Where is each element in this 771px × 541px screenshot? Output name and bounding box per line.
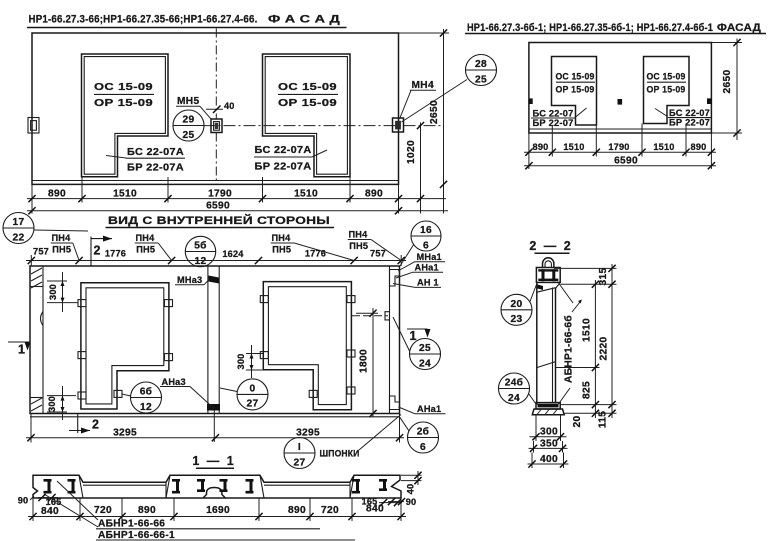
svg-text:5б: 5б	[194, 240, 207, 252]
svg-text:40: 40	[406, 484, 416, 495]
svg-text:1: 1	[410, 329, 417, 343]
svg-text:Ф А С А Д: Ф А С А Д	[268, 14, 340, 26]
svg-text:20: 20	[572, 416, 583, 428]
svg-text:25: 25	[475, 74, 487, 85]
svg-text:ПН5: ПН5	[349, 241, 368, 251]
svg-text:АН 1: АН 1	[417, 278, 439, 288]
svg-text:АБНР1-66-66: АБНР1-66-66	[98, 519, 165, 530]
svg-text:27: 27	[294, 457, 306, 468]
svg-text:МНа3: МНа3	[177, 275, 202, 285]
svg-text:825: 825	[582, 381, 593, 399]
svg-text:1790: 1790	[608, 142, 629, 152]
svg-text:1510: 1510	[294, 189, 318, 200]
svg-text:12: 12	[195, 256, 207, 267]
svg-text:1776: 1776	[105, 249, 126, 259]
svg-text:МН5: МН5	[177, 96, 199, 107]
svg-text:1510: 1510	[653, 142, 674, 152]
svg-text:1690: 1690	[206, 505, 230, 516]
svg-text:1020: 1020	[406, 140, 417, 164]
svg-text:ПН5: ПН5	[52, 244, 71, 254]
svg-text:1 — 1: 1 — 1	[192, 454, 235, 468]
svg-text:АБНР1-66-6б: АБНР1-66-6б	[563, 315, 575, 383]
svg-text:АНа1: АНа1	[417, 404, 441, 414]
svg-text:757: 757	[370, 249, 386, 259]
svg-text:1790: 1790	[208, 189, 232, 200]
svg-text:25: 25	[419, 343, 431, 354]
svg-text:350: 350	[540, 439, 558, 450]
svg-text:6б: 6б	[140, 386, 153, 398]
svg-text:ОС 15-09: ОС 15-09	[556, 72, 595, 82]
svg-text:БР 22-07А: БР 22-07А	[255, 162, 312, 173]
svg-text:ПН4: ПН4	[136, 233, 156, 243]
svg-text:6590: 6590	[614, 156, 638, 167]
svg-text:2б: 2б	[417, 426, 430, 438]
svg-text:3295: 3295	[296, 427, 320, 438]
svg-text:720: 720	[94, 505, 112, 516]
svg-text:300: 300	[236, 354, 246, 370]
svg-text:БР 22-07А: БР 22-07А	[127, 162, 184, 173]
svg-text:890: 890	[138, 505, 156, 516]
svg-text:ПН4: ПН4	[349, 230, 369, 240]
svg-text:1776: 1776	[305, 249, 326, 259]
svg-text:6: 6	[420, 442, 426, 453]
svg-text:115: 115	[598, 411, 609, 428]
svg-text:90: 90	[18, 496, 29, 506]
svg-text:24: 24	[419, 358, 431, 369]
svg-text:МНа1: МНа1	[417, 252, 442, 262]
svg-text:ОС 15-09: ОС 15-09	[647, 72, 686, 82]
svg-text:ОР 15-09: ОР 15-09	[556, 85, 595, 95]
svg-text:ОР 15-09: ОР 15-09	[278, 98, 337, 109]
svg-text:165: 165	[46, 497, 62, 507]
svg-text:29: 29	[183, 115, 195, 126]
svg-text:ОС 15-09: ОС 15-09	[94, 82, 153, 93]
svg-text:840: 840	[41, 506, 59, 517]
svg-text:890: 890	[48, 189, 66, 200]
svg-text:20: 20	[511, 299, 523, 310]
svg-text:1510: 1510	[113, 189, 137, 200]
svg-text:1510: 1510	[563, 142, 584, 152]
svg-text:АНа3: АНа3	[162, 377, 186, 387]
svg-text:МН4: МН4	[412, 80, 434, 91]
svg-text:2650: 2650	[429, 100, 440, 124]
svg-text:АНа1: АНа1	[415, 263, 439, 273]
svg-text:ОС 15-09: ОС 15-09	[278, 82, 337, 93]
svg-text:НР1-66.27.3-6б-1; НР1-66.27.35: НР1-66.27.3-6б-1; НР1-66.27.35-6б-1; НР1…	[467, 22, 713, 34]
svg-text:ВИД С ВНУТРЕННЕЙ СТОРОНЫ: ВИД С ВНУТРЕННЕЙ СТОРОНЫ	[108, 214, 330, 227]
svg-text:28: 28	[475, 59, 487, 70]
svg-text:890: 890	[533, 142, 549, 152]
svg-text:1510: 1510	[582, 318, 593, 342]
svg-text:ФАСАД: ФАСАД	[717, 22, 761, 34]
svg-text:НР1-66.27.3-66;НР1-66.27.35-66: НР1-66.27.3-66;НР1-66.27.35-66;НР1-66.27…	[29, 14, 258, 26]
svg-text:90: 90	[406, 497, 417, 507]
svg-text:165: 165	[362, 496, 378, 506]
svg-text:24б: 24б	[505, 377, 524, 389]
svg-text:2 — 2: 2 — 2	[529, 239, 572, 253]
svg-text:ПН4: ПН4	[272, 233, 292, 243]
svg-text:300: 300	[48, 284, 58, 300]
svg-text:I: I	[298, 442, 301, 453]
svg-text:АБНР1-66-66-1: АБНР1-66-66-1	[98, 530, 175, 541]
svg-text:720: 720	[321, 505, 339, 516]
svg-text:400: 400	[540, 454, 558, 465]
svg-text:24: 24	[508, 393, 520, 404]
svg-text:ПН5: ПН5	[136, 244, 155, 254]
svg-text:1: 1	[18, 343, 25, 357]
svg-text:890: 890	[691, 142, 707, 152]
svg-text:ПН4: ПН4	[52, 233, 72, 243]
svg-text:1800: 1800	[359, 349, 370, 373]
svg-text:300: 300	[540, 427, 558, 438]
svg-text:23: 23	[511, 314, 523, 325]
svg-text:2: 2	[92, 418, 99, 432]
svg-text:757: 757	[33, 247, 49, 257]
svg-text:ОР 15-09: ОР 15-09	[647, 85, 686, 95]
svg-text:22: 22	[13, 232, 25, 243]
svg-text:315: 315	[598, 268, 609, 286]
svg-text:ШПОНКИ: ШПОНКИ	[320, 449, 360, 459]
svg-text:6: 6	[423, 240, 429, 251]
svg-text:2220: 2220	[599, 337, 610, 361]
svg-text:27: 27	[247, 399, 259, 410]
svg-text:БР 22-07: БР 22-07	[533, 118, 574, 128]
svg-text:16: 16	[420, 225, 432, 236]
svg-text:6590: 6590	[206, 200, 230, 211]
svg-text:3295: 3295	[113, 427, 137, 438]
svg-text:300: 300	[47, 396, 57, 412]
svg-text:БС 22-07А: БС 22-07А	[255, 145, 312, 156]
svg-text:40: 40	[224, 101, 235, 111]
svg-text:2650: 2650	[722, 70, 733, 94]
svg-text:17: 17	[13, 217, 25, 228]
svg-text:890: 890	[288, 505, 306, 516]
svg-text:2: 2	[94, 244, 101, 258]
svg-text:БР 22-07: БР 22-07	[669, 117, 710, 127]
svg-text:ПН5: ПН5	[272, 244, 291, 254]
svg-text:БС 22-07А: БС 22-07А	[127, 147, 184, 158]
svg-text:12: 12	[140, 402, 152, 413]
svg-text:890: 890	[365, 189, 383, 200]
svg-text:25: 25	[183, 130, 195, 141]
svg-text:ОР 15-09: ОР 15-09	[94, 98, 153, 109]
svg-text:0: 0	[250, 383, 256, 394]
svg-text:1624: 1624	[222, 249, 244, 259]
